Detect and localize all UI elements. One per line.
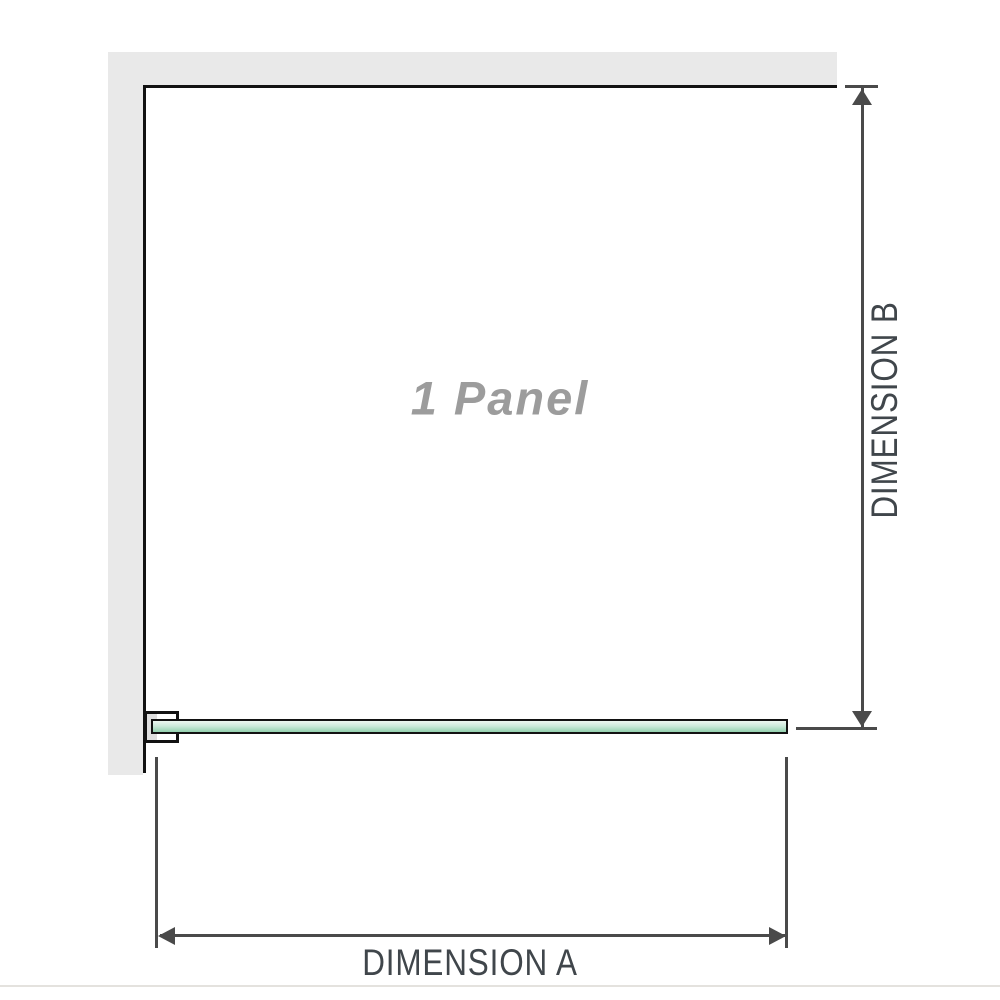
dimension-a-extension-left: [155, 757, 158, 948]
arrow-right-icon: [769, 927, 786, 945]
dimension-a-extension-right: [785, 757, 788, 948]
dimension-a-label: DIMENSION A: [362, 942, 578, 984]
frame-top-line: [143, 85, 837, 88]
dimension-b-label: DIMENSION B: [864, 301, 906, 518]
panel-count-label: 1 Panel: [411, 371, 590, 426]
wall-left: [108, 52, 143, 775]
dimension-a-line: [160, 934, 787, 937]
wall-top: [108, 52, 837, 85]
arrow-down-icon: [852, 711, 872, 727]
frame-left-line: [143, 85, 146, 773]
arrow-up-icon: [852, 89, 872, 105]
glass-panel: [151, 719, 788, 734]
arrow-left-icon: [158, 927, 175, 945]
page-divider: [0, 985, 1000, 987]
dimension-b-tick-bottom: [796, 727, 877, 730]
shower-panel-diagram: 1 Panel DIMENSION B DIMENSION A: [0, 0, 1000, 1000]
